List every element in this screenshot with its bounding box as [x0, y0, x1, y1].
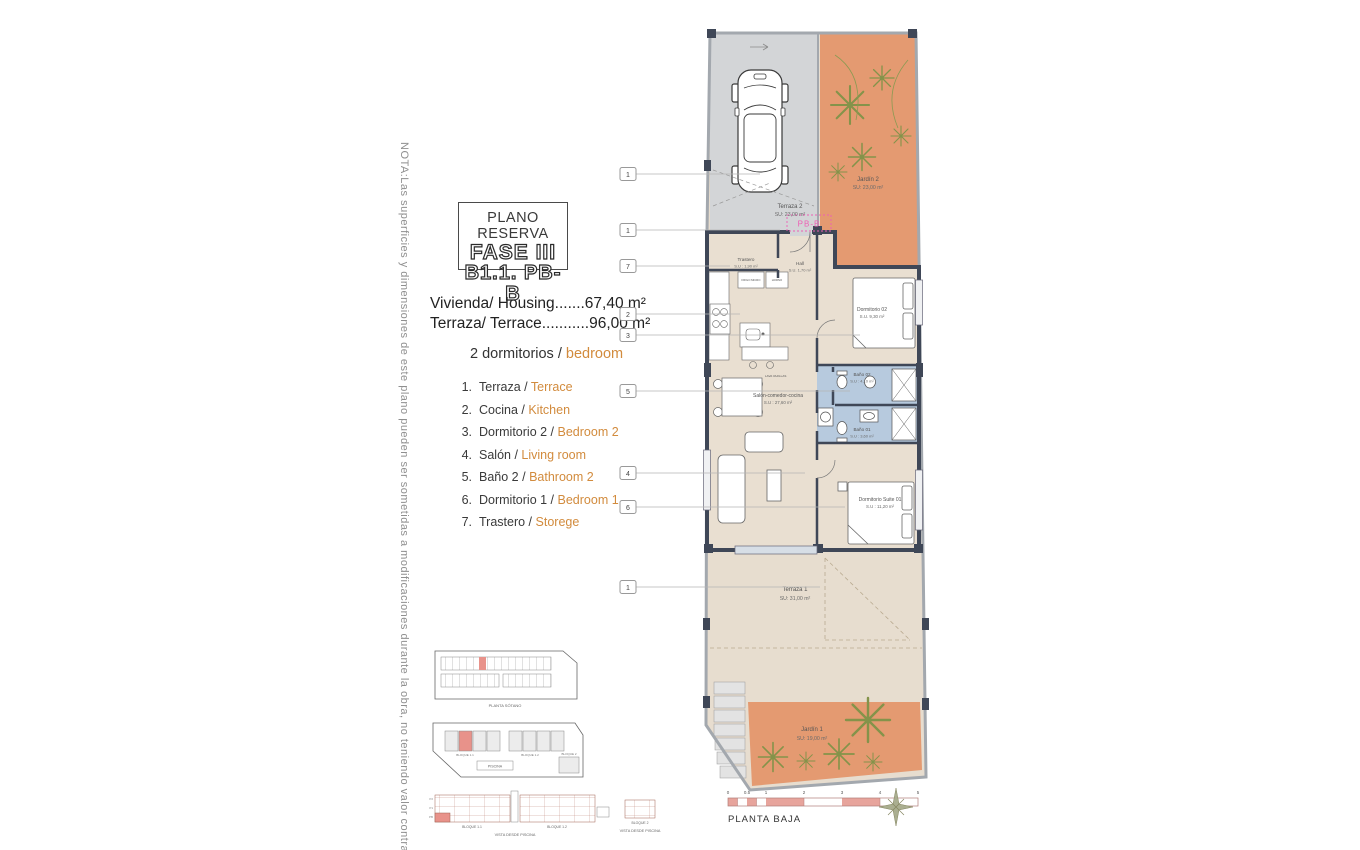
callout-1c: 1: [626, 585, 630, 592]
callout-5: 5: [626, 389, 630, 396]
title-block: PLANO RESERVA FASE III B1.1. PB-B: [458, 202, 568, 270]
legend-item: 3.Dormitorio 2 / Bedroom 2: [458, 425, 619, 439]
elevation-diagram: P2 P1 PB BLOQUE 1.1 BLOQUE 1.2 VISTA DES…: [429, 791, 661, 837]
callout-2: 2: [626, 312, 630, 319]
callout-4: 4: [626, 471, 630, 478]
svg-text:BLOQUE 1.1: BLOQUE 1.1: [462, 825, 482, 829]
room-legend: 1.Terraza / Terrace 2.Cocina / Kitchen 3…: [458, 380, 619, 538]
callout-6: 6: [626, 505, 630, 512]
svg-text:S.U : 3,60 m²: S.U : 3,60 m²: [850, 434, 874, 439]
callout-3: 3: [626, 333, 630, 340]
svg-text:0: 0: [727, 790, 730, 795]
room-label-jardin1: Jardín 1: [801, 727, 823, 733]
bedroom-count: 2 dormitorios / bedroom: [470, 346, 623, 362]
oven-label: HORNO: [772, 278, 783, 282]
legend-item: 7.Trastero / Storege: [458, 515, 619, 529]
legend-item: 2.Cocina / Kitchen: [458, 403, 619, 417]
room-label-jardin2: Jardín 2: [857, 177, 879, 183]
svg-text:1: 1: [765, 790, 768, 795]
floorplan-sheet: NOTA:Las superficies y dimensiones de es…: [0, 0, 1360, 850]
fridge-label: FRIGO MICRO: [742, 278, 762, 282]
legend-item: 6.Dormitorio 1 / Bedroom 1: [458, 493, 619, 507]
svg-text:SU: 23,00 m²: SU: 23,00 m²: [775, 212, 806, 218]
compass-icon: [879, 788, 913, 826]
room-label-hall: Hall: [796, 261, 804, 266]
legend-item: 4.Salón / Living room: [458, 448, 619, 462]
svg-text:BLOQUE 1.2: BLOQUE 1.2: [547, 825, 567, 829]
svg-text:0.5: 0.5: [744, 790, 751, 795]
plan-caption: PLANTA BAJA: [728, 814, 801, 825]
svg-text:4: 4: [879, 790, 882, 795]
phase-title: FASE III: [459, 243, 567, 263]
parking-diagram: PLANTA SÓTANO: [435, 651, 577, 708]
svg-text:S.U. 1,70 m²: S.U. 1,70 m²: [789, 268, 812, 273]
svg-text:3: 3: [841, 790, 844, 795]
site-key-diagrams: PLANTA SÓTANO PISCINA BLOQUE 1.1 BLOQUE …: [425, 645, 665, 840]
pool-label: PISCINA: [488, 765, 503, 769]
svg-text:BLOQUE 2: BLOQUE 2: [632, 821, 649, 825]
garden-steps: [714, 682, 746, 778]
svg-text:SU: 31,00 m²: SU: 31,00 m²: [780, 596, 811, 602]
room-label-terraza2: Terraza 2: [777, 204, 803, 210]
room-label-suite: Dormitorio Suite 01: [859, 497, 902, 503]
room-label-salon: Salón-comedor-cocina: [753, 393, 803, 399]
room-label-bano02: Baño 02: [853, 372, 871, 377]
svg-text:S.U : 4,10 m²: S.U : 4,10 m²: [850, 379, 874, 384]
svg-text:2: 2: [803, 790, 806, 795]
svg-text:S.U. 9,30 m²: S.U. 9,30 m²: [860, 314, 885, 319]
svg-text:BLOQUE 1.1: BLOQUE 1.1: [456, 753, 474, 757]
svg-text:SU: 23,00 m²: SU: 23,00 m²: [853, 185, 884, 191]
parking-caption: PLANTA SÓTANO: [489, 703, 522, 708]
svg-text:BLOQUE 1.2: BLOQUE 1.2: [521, 753, 539, 757]
highlighted-parking: [479, 657, 486, 670]
plan-subtitle: PLANO RESERVA: [459, 210, 567, 242]
callout-1b: 1: [626, 228, 630, 235]
dishwasher-label: LAVA VAJILLAS: [765, 374, 786, 378]
svg-text:SU: 19,00 m²: SU: 19,00 m²: [797, 736, 828, 742]
svg-text:P1: P1: [429, 806, 433, 810]
svg-text:PB: PB: [429, 815, 433, 819]
callout-7: 7: [626, 264, 630, 271]
svg-text:VISTA DESDE PISCINA: VISTA DESDE PISCINA: [620, 829, 661, 833]
legend-item: 5.Baño 2 / Bathroom 2: [458, 470, 619, 484]
room-label-dormitorio02: Dormitorio 02: [857, 307, 887, 313]
scale-bar: 0 0.5 1 2 3 4 5: [727, 790, 920, 806]
svg-text:5: 5: [917, 790, 920, 795]
svg-text:S.U : 11,20 m²: S.U : 11,20 m²: [866, 504, 895, 509]
unit-tag-label: PB-B: [798, 220, 821, 229]
room-label-terraza1: Terraza 1: [782, 587, 808, 593]
siteplan-diagram: PISCINA BLOQUE 1.1 BLOQUE 1.2 BLOQUE 2: [433, 723, 583, 777]
bed-suite: [838, 482, 914, 544]
highlighted-unit: [459, 731, 472, 751]
callouts: 1 1 7 2 3 5 4 6 1: [620, 168, 636, 594]
svg-text:S.U : 27,60 m²: S.U : 27,60 m²: [764, 400, 793, 405]
view-caption: VISTA DESDE PISCINA: [495, 833, 536, 837]
legend-item: 1.Terraza / Terrace: [458, 380, 619, 394]
room-label-bano01: Baño 01: [853, 427, 871, 432]
svg-text:S.U : 1,90 m²: S.U : 1,90 m²: [734, 264, 758, 269]
bed-dormitorio02: [853, 278, 915, 348]
svg-text:BLOQUE 2: BLOQUE 2: [561, 752, 576, 756]
disclaimer-note: NOTA:Las superficies y dimensiones de es…: [398, 142, 410, 734]
svg-text:P2: P2: [429, 797, 433, 801]
highlighted-elevation-unit: [435, 813, 450, 822]
room-label-trastero: Trastero: [738, 257, 755, 262]
callout-1: 1: [626, 172, 630, 179]
